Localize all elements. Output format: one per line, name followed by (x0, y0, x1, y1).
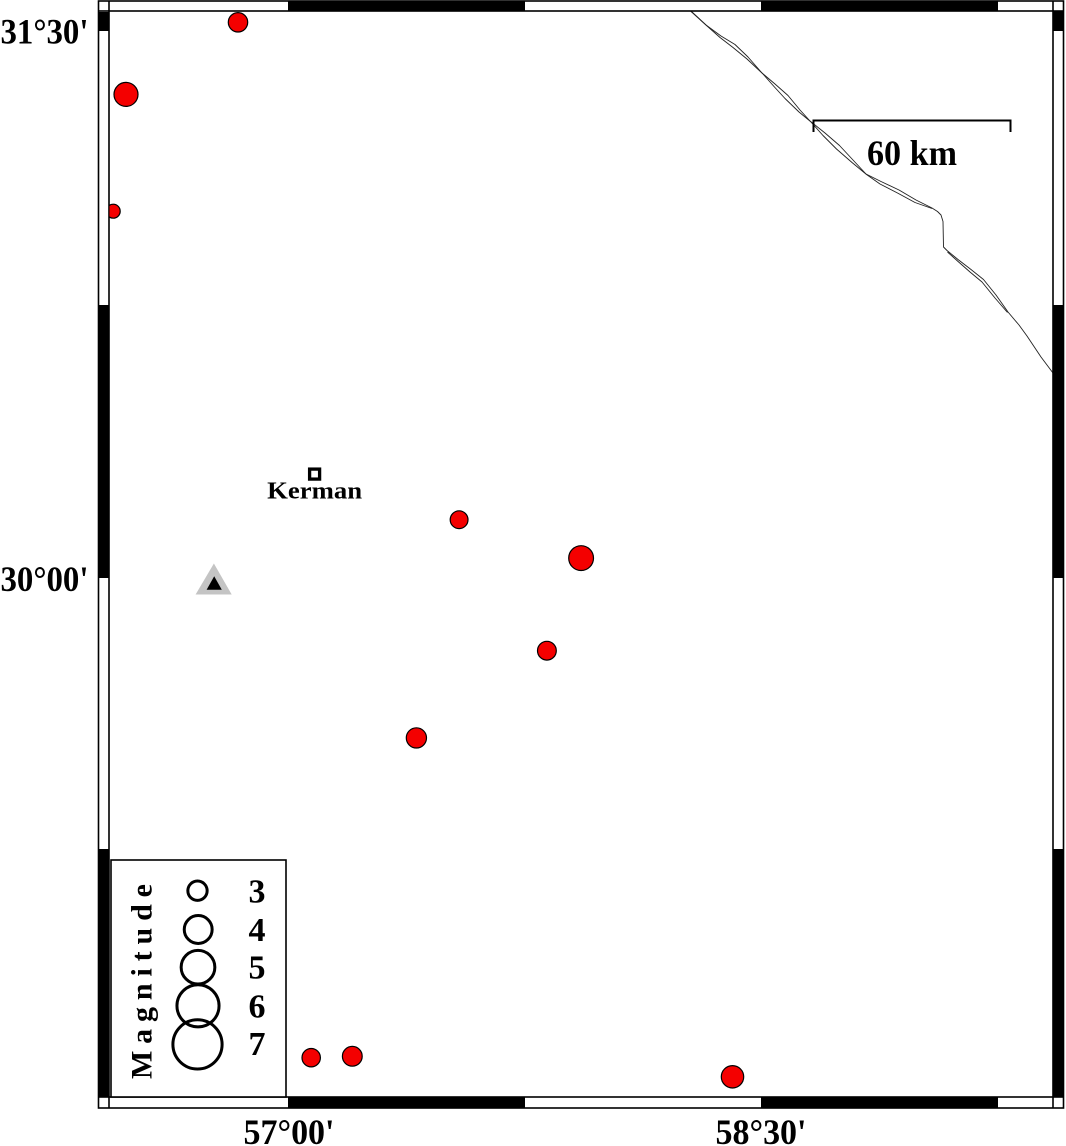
svg-text:31°30': 31°30' (1, 12, 89, 52)
svg-text:57°00': 57°00' (244, 1112, 335, 1146)
svg-text:3: 3 (249, 873, 266, 910)
svg-text:7: 7 (249, 1026, 266, 1063)
svg-text:4: 4 (249, 912, 266, 949)
svg-text:30°00': 30°00' (1, 559, 89, 599)
svg-text:M a g n i t u d e: M a g n i t u d e (126, 884, 159, 1079)
svg-text:5: 5 (249, 950, 266, 987)
svg-text:6: 6 (249, 988, 266, 1025)
svg-text:58°30': 58°30' (716, 1112, 807, 1146)
svg-text:60 km: 60 km (867, 133, 957, 173)
svg-text:Kerman: Kerman (267, 479, 362, 505)
